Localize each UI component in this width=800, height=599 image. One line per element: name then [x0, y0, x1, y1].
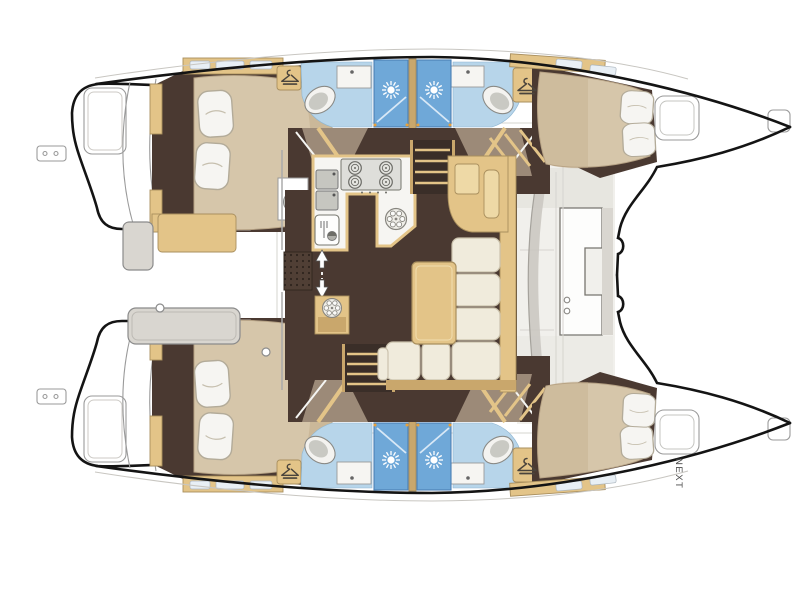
deck-fitting [564, 308, 570, 314]
next-button[interactable]: NEXT [673, 458, 684, 489]
saloon-table [412, 262, 456, 344]
wardrobe [277, 66, 301, 90]
spoke-wheel-icon [386, 209, 407, 230]
cockpit-bench [128, 308, 240, 344]
davit-bracket [37, 146, 66, 161]
burner-icon [349, 176, 362, 189]
pillow [620, 90, 655, 125]
spoke-wheel-icon [323, 299, 342, 318]
cockpit-bench [158, 214, 236, 252]
burner-icon [380, 162, 393, 175]
floor-plan-canvas: NEXT [0, 0, 800, 599]
pillow [194, 142, 231, 190]
pillow [622, 122, 656, 157]
oven-icon [315, 215, 339, 245]
cockpit-seat [123, 222, 153, 270]
aft-bathroom [300, 60, 409, 127]
burner-icon [349, 162, 362, 175]
sofa-base [386, 380, 516, 390]
cleat-ring [262, 348, 270, 356]
floor-plan-page: NEXT [0, 0, 800, 599]
pillow [197, 90, 234, 138]
galley-cabinet [315, 296, 349, 334]
deck-hatch [655, 96, 699, 140]
wash-basin [337, 66, 371, 88]
deck-fitting [564, 297, 570, 303]
cleat-ring [156, 304, 164, 312]
wash-basin [451, 66, 484, 87]
burner-icon [380, 176, 393, 189]
saloon [284, 140, 517, 392]
chart-table [448, 156, 508, 232]
